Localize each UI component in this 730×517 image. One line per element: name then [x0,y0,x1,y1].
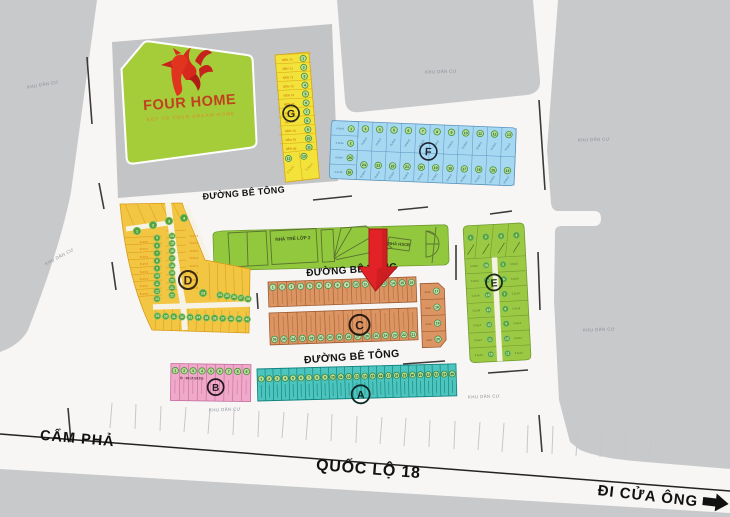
svg-text:5x15.5: 5x15.5 [140,270,149,274]
svg-text:15: 15 [371,374,375,378]
svg-text:10: 10 [331,375,335,379]
svg-text:C: C [355,318,364,332]
svg-text:22: 22 [426,373,430,377]
svg-text:3: 3 [192,369,194,373]
svg-text:28: 28 [347,335,351,339]
svg-text:20: 20 [170,279,174,283]
svg-text:30: 30 [328,335,332,339]
svg-text:8: 8 [306,119,308,123]
svg-text:8: 8 [316,376,318,380]
svg-text:1: 1 [350,127,352,131]
svg-text:12: 12 [493,132,497,136]
svg-text:2: 2 [183,369,185,373]
svg-text:18: 18 [395,373,399,377]
svg-text:5x15.5: 5x15.5 [140,292,149,296]
svg-text:16: 16 [477,168,481,172]
svg-text:7: 7 [327,284,329,288]
svg-text:4: 4 [515,233,517,237]
svg-text:NỀN 73: NỀN 73 [283,83,294,88]
svg-text:NỀN 79: NỀN 79 [285,137,296,142]
svg-text:A: A [357,389,365,401]
svg-text:5.5x14: 5.5x14 [472,293,481,297]
svg-text:9: 9 [307,128,309,132]
svg-text:11: 11 [478,132,482,136]
svg-text:5.5x14: 5.5x14 [470,264,479,268]
svg-text:36: 36 [213,316,217,320]
svg-text:2: 2 [268,377,270,381]
svg-text:17: 17 [462,167,466,171]
svg-text:16: 16 [170,249,174,253]
svg-text:3: 3 [303,74,305,78]
svg-text:5x16: 5x16 [425,306,431,310]
svg-text:2: 2 [152,223,154,227]
svg-text:18: 18 [170,264,174,268]
svg-text:11: 11 [488,338,492,342]
svg-text:6: 6 [318,284,320,288]
svg-text:35: 35 [282,337,286,341]
svg-text:25: 25 [450,372,454,376]
svg-text:13: 13 [486,308,490,312]
svg-text:16: 16 [379,374,383,378]
svg-text:G: G [287,108,296,120]
svg-text:2: 2 [485,235,487,239]
svg-text:13: 13 [155,297,159,301]
svg-text:14: 14 [170,234,174,238]
svg-text:9: 9 [324,375,326,379]
svg-text:4.5x16: 4.5x16 [336,126,344,130]
svg-text:12: 12 [287,157,291,161]
svg-text:5x15.5: 5x15.5 [190,241,199,245]
svg-text:31: 31 [319,336,323,340]
svg-text:24: 24 [442,372,446,376]
svg-text:1: 1 [174,369,176,373]
svg-text:34: 34 [291,337,295,341]
svg-text:3: 3 [276,377,278,381]
svg-text:19: 19 [403,373,407,377]
svg-text:19: 19 [170,271,174,275]
svg-text:27: 27 [239,296,243,300]
svg-text:8: 8 [337,283,339,287]
svg-text:23: 23 [434,372,438,376]
svg-text:7: 7 [306,110,308,114]
svg-text:25: 25 [374,334,378,338]
svg-text:15: 15 [400,281,404,285]
svg-text:5.5x14: 5.5x14 [472,308,481,312]
svg-text:10: 10 [307,137,311,141]
svg-text:29: 29 [337,335,341,339]
svg-text:32: 32 [310,336,314,340]
svg-text:NỀN 74: NỀN 74 [283,92,294,97]
svg-text:3: 3 [500,234,502,238]
svg-text:6: 6 [156,244,158,248]
svg-text:18: 18 [435,305,439,309]
svg-text:17: 17 [170,256,174,260]
svg-text:5.5x14: 5.5x14 [512,306,521,310]
svg-text:28: 28 [246,297,250,301]
svg-text:16: 16 [484,263,488,267]
svg-text:5.5x14: 5.5x14 [474,338,483,342]
svg-text:29: 29 [156,314,160,318]
svg-text:24: 24 [362,163,366,167]
svg-text:37: 37 [221,317,225,321]
svg-text:20: 20 [419,165,423,169]
svg-text:5: 5 [309,284,311,288]
svg-text:12: 12 [487,323,491,327]
svg-text:12: 12 [155,289,159,293]
svg-text:5x15.5: 5x15.5 [190,249,199,253]
svg-text:10: 10 [464,131,468,135]
svg-text:5x15.5: 5x15.5 [140,240,149,244]
svg-text:6: 6 [407,129,409,133]
svg-text:25: 25 [225,294,229,298]
svg-text:5x15.5: 5x15.5 [190,256,199,260]
svg-text:D: D [184,274,193,288]
svg-text:10: 10 [505,337,509,341]
svg-text:14: 14 [505,169,509,173]
svg-text:5.5x14: 5.5x14 [473,323,482,327]
svg-text:6: 6 [305,101,307,105]
svg-text:E: E [490,277,498,289]
svg-text:26: 26 [365,334,369,338]
svg-text:NỀN 72: NỀN 72 [283,74,294,79]
svg-text:4.5x16: 4.5x16 [335,155,343,159]
svg-text:21: 21 [170,286,174,290]
svg-text:17: 17 [387,374,391,378]
svg-text:17: 17 [434,289,438,293]
svg-text:5: 5 [292,376,294,380]
svg-text:5.5x14: 5.5x14 [514,336,523,340]
svg-text:15: 15 [491,168,495,172]
svg-text:5.5x14: 5.5x14 [510,262,519,266]
svg-text:26: 26 [347,170,351,174]
svg-text:5.5x14: 5.5x14 [511,276,520,280]
svg-text:40: 40 [245,318,249,322]
svg-text:19: 19 [434,166,438,170]
svg-text:33: 33 [300,336,304,340]
svg-text:5x15.5: 5x15.5 [140,255,149,259]
svg-text:5.5x14: 5.5x14 [515,351,524,355]
svg-text:25: 25 [348,156,352,160]
svg-text:24: 24 [218,293,222,297]
svg-text:4: 4 [284,376,286,380]
svg-text:14: 14 [486,293,490,297]
svg-text:39: 39 [237,317,241,321]
svg-text:36: 36 [273,337,277,341]
svg-text:4: 4 [379,128,381,132]
svg-text:35: 35 [205,316,209,320]
svg-text:4: 4 [201,369,203,373]
svg-text:26: 26 [232,295,236,299]
svg-text:5.5x14: 5.5x14 [512,291,521,295]
svg-text:8: 8 [156,259,158,263]
svg-text:9: 9 [246,370,248,374]
svg-text:14: 14 [363,374,367,378]
svg-text:B: B [212,383,219,394]
svg-text:13: 13 [355,375,359,379]
svg-text:22: 22 [170,293,174,297]
svg-text:10: 10 [354,283,358,287]
svg-text:31: 31 [172,315,176,319]
svg-text:1: 1 [136,229,138,233]
svg-text:20: 20 [411,373,415,377]
svg-text:14: 14 [391,281,395,285]
svg-text:21: 21 [411,333,415,337]
svg-text:23: 23 [201,291,205,295]
svg-text:6: 6 [219,369,221,373]
svg-text:5: 5 [156,236,158,240]
svg-text:NỀN 78: NỀN 78 [285,128,296,133]
svg-text:11: 11 [506,351,510,355]
svg-text:24: 24 [384,334,388,338]
svg-text:15: 15 [170,242,174,246]
svg-text:13: 13 [507,133,511,137]
svg-text:6: 6 [300,376,302,380]
svg-text:18: 18 [448,167,452,171]
svg-text:B : 69 (4.5X15): B : 69 (4.5X15) [180,376,203,380]
svg-text:10: 10 [489,352,493,356]
svg-text:4: 4 [300,285,302,289]
svg-text:16: 16 [410,281,414,285]
svg-text:38: 38 [229,317,233,321]
svg-text:20: 20 [436,337,440,341]
svg-text:1: 1 [260,377,262,381]
svg-text:5: 5 [210,369,212,373]
svg-text:12: 12 [347,375,351,379]
svg-text:13: 13 [302,154,306,158]
svg-text:5x15.5: 5x15.5 [140,262,149,266]
svg-text:7: 7 [308,376,310,380]
svg-text:NỀN 70: NỀN 70 [282,57,293,62]
svg-text:22: 22 [391,164,395,168]
svg-text:NỀN 80: NỀN 80 [286,146,297,151]
svg-text:22: 22 [402,333,406,337]
svg-text:5x16: 5x16 [426,338,432,342]
svg-text:7: 7 [422,129,424,133]
svg-text:5x15.5: 5x15.5 [190,234,199,238]
svg-text:5.5x14: 5.5x14 [471,279,480,283]
svg-text:5.5x14: 5.5x14 [513,321,522,325]
svg-text:1: 1 [302,57,304,61]
svg-text:8: 8 [436,130,438,134]
svg-text:4.5x16: 4.5x16 [334,170,342,174]
svg-text:33: 33 [188,315,192,319]
svg-text:8: 8 [237,370,239,374]
svg-text:3: 3 [168,219,170,223]
svg-text:5.5x14: 5.5x14 [475,353,484,357]
svg-text:21: 21 [419,373,423,377]
svg-text:7: 7 [156,251,158,255]
svg-text:11: 11 [363,282,367,286]
svg-text:F: F [425,146,432,158]
svg-text:23: 23 [393,333,397,337]
svg-text:1: 1 [272,286,274,290]
svg-text:5x16: 5x16 [426,322,432,326]
svg-text:2: 2 [281,285,283,289]
svg-text:7: 7 [228,369,230,373]
svg-text:11: 11 [155,282,159,286]
svg-text:5x16: 5x16 [425,290,431,294]
svg-text:21: 21 [405,165,409,169]
svg-text:1: 1 [470,236,472,240]
svg-text:5x15.5: 5x15.5 [140,277,149,281]
svg-text:23: 23 [376,164,380,168]
svg-text:4.5x16: 4.5x16 [336,141,344,145]
svg-text:5: 5 [393,128,395,132]
svg-text:4: 4 [304,83,306,87]
svg-text:32: 32 [180,315,184,319]
svg-text:NỀN 71: NỀN 71 [282,66,293,71]
svg-text:5x15.5: 5x15.5 [190,264,199,268]
svg-text:9: 9 [156,267,158,271]
svg-text:5x15.5: 5x15.5 [140,247,149,251]
svg-text:30: 30 [164,315,168,319]
svg-text:11: 11 [339,375,343,379]
svg-text:9: 9 [346,283,348,287]
svg-text:2: 2 [303,66,305,70]
svg-text:34: 34 [196,316,200,320]
svg-text:10: 10 [155,274,159,278]
svg-text:2: 2 [350,141,352,145]
svg-text:3: 3 [290,285,292,289]
svg-text:19: 19 [436,321,440,325]
svg-text:5x15.5: 5x15.5 [140,284,149,288]
svg-text:9: 9 [450,131,452,135]
svg-text:11: 11 [307,145,311,149]
svg-text:3: 3 [364,127,366,131]
svg-text:5: 5 [305,92,307,96]
